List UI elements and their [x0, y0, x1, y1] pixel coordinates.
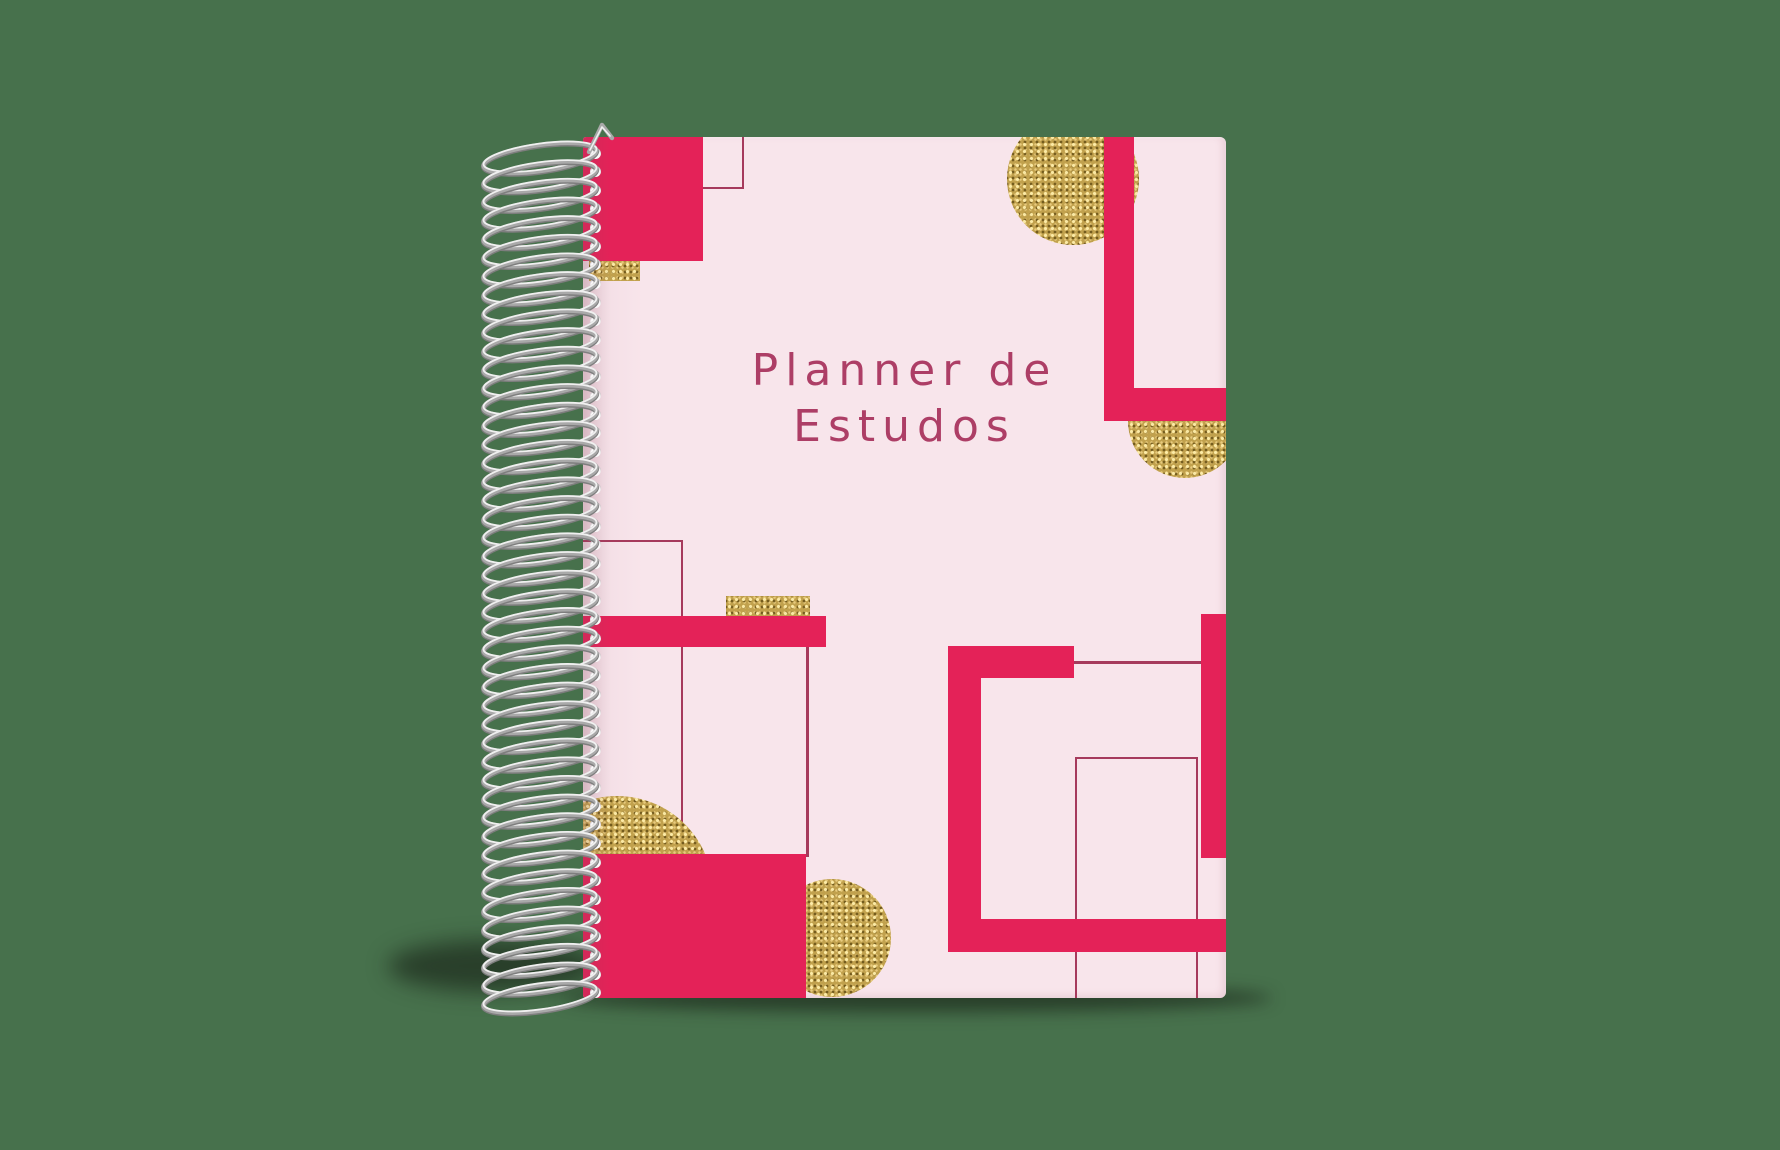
deco-bottomright-thin-line — [1073, 661, 1203, 664]
deco-bottomright-bracket-bottom — [948, 919, 1226, 952]
deco-midleft-thin-line — [806, 645, 809, 857]
deco-midleft-gold-rect — [726, 596, 810, 617]
cover-title-line2: Estudos — [583, 399, 1226, 455]
deco-bottomright-outline-rect — [1075, 757, 1198, 998]
cover-title: Planner de Estudos — [583, 343, 1226, 483]
deco-rightedge-bar — [1201, 614, 1226, 858]
spiral-binding — [452, 108, 652, 1018]
spiral-wire-end-icon — [589, 125, 612, 152]
cover-title-line1: Planner de — [583, 343, 1226, 399]
notebook-cover: Planner de Estudos — [583, 137, 1226, 998]
scene: Planner de Estudos — [0, 0, 1780, 1150]
deco-bottomright-bracket-left — [948, 646, 981, 952]
